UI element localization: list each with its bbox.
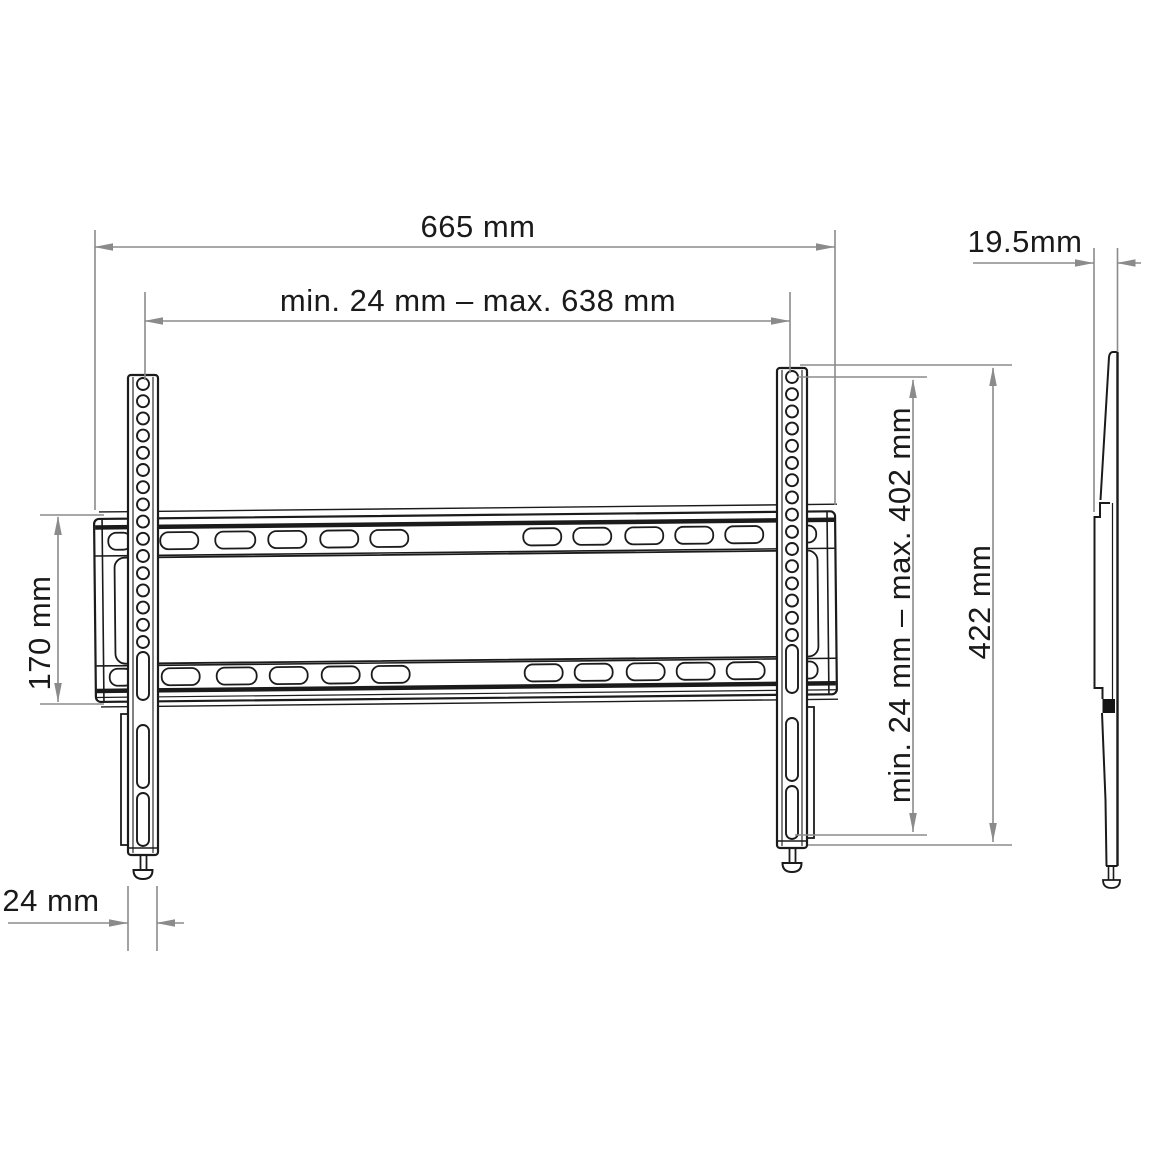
rail-holes <box>786 371 798 839</box>
dim-rail-spacing-range: min. 24 mm – max. 638 mm <box>145 283 790 380</box>
dimension-label: 665 mm <box>421 209 536 244</box>
tv-mount-drawing: 665 mm min. 24 mm – max. 638 mm 170 mm m… <box>0 0 1160 1160</box>
dim-rail-width: 24 mm <box>2 883 184 951</box>
side-locking-screw <box>1103 866 1120 888</box>
dimension-label: min. 24 mm – max. 638 mm <box>280 283 676 318</box>
dimension-label: 170 mm <box>22 576 57 691</box>
screw-head <box>1103 880 1120 888</box>
dim-plate-height: 170 mm <box>22 515 104 704</box>
side-plate-profile <box>1095 503 1111 699</box>
rail-holes <box>137 378 149 846</box>
side-view <box>1095 352 1121 888</box>
side-clip-block <box>1103 699 1116 713</box>
wall-plate <box>94 504 839 707</box>
dimension-label: min. 24 mm – max. 402 mm <box>882 407 917 803</box>
dim-total-width: 665 mm <box>95 209 835 510</box>
side-rail-top-profile <box>1101 352 1118 500</box>
dimension-label: 24 mm <box>2 883 99 918</box>
locking-screw <box>783 848 802 872</box>
dimension-label: 422 mm <box>962 545 997 660</box>
screw-head <box>134 870 153 879</box>
front-view <box>94 368 839 879</box>
dimension-label: 19.5mm <box>968 224 1083 259</box>
locking-screw <box>134 855 153 879</box>
screw-head <box>783 863 802 872</box>
plate-top-face-edge <box>99 504 837 512</box>
side-rail-bottom-profile <box>1102 713 1107 866</box>
plate-outline <box>94 511 837 702</box>
technical-drawing-canvas: 665 mm min. 24 mm – max. 638 mm 170 mm m… <box>0 0 1160 1160</box>
